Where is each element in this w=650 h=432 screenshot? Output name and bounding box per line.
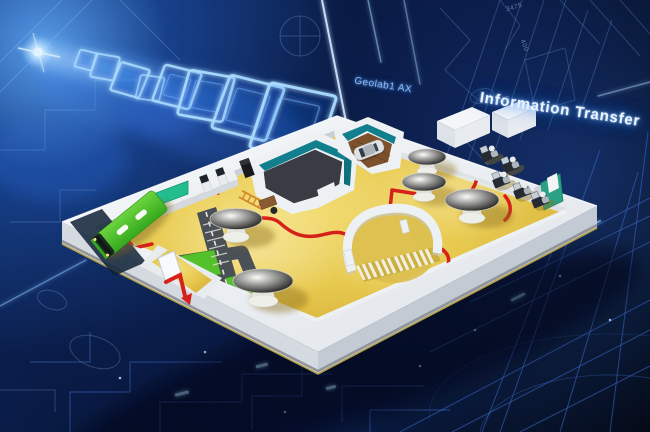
scene-3d-floorplan: Geolab1 AX Information Transfer 3475 400… xyxy=(0,0,650,432)
building-3d xyxy=(52,101,650,432)
scene-artwork xyxy=(0,0,650,432)
workstation xyxy=(478,141,505,167)
